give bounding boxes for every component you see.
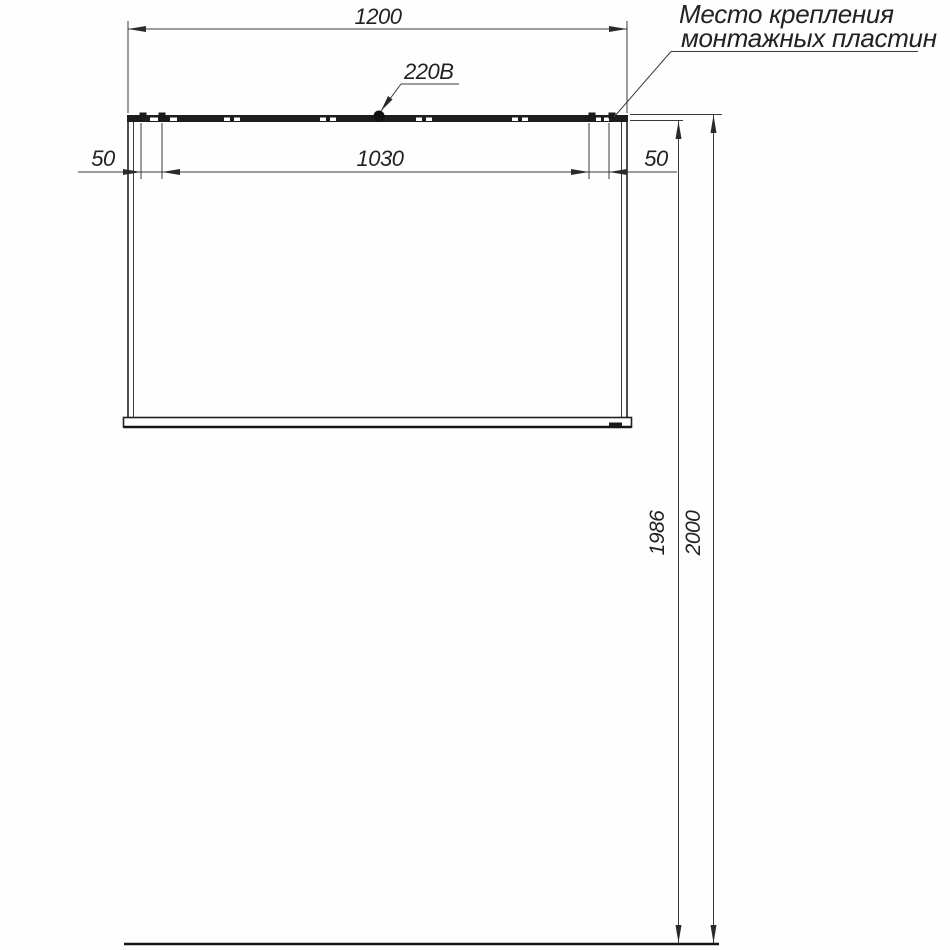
arrowhead-span-left [162, 169, 180, 175]
arrowhead-offset-left-a [123, 169, 141, 175]
drawing-sheet: 1200 50 1030 50 1986 2000 220В [0, 0, 950, 950]
mounting-tab-left-outer [140, 113, 147, 119]
mounting-tab-left-inner [159, 113, 166, 119]
dim-label-offset-left: 50 [91, 146, 116, 171]
arrowhead-span-right [571, 169, 589, 175]
arrowhead-1986-bottom [676, 925, 682, 943]
arrowhead-offset-right-a [609, 169, 627, 175]
dim-label-plate-span: 1030 [357, 146, 405, 171]
dim-label-offset-right: 50 [644, 146, 669, 171]
mounting-annotation: Место крепления монтажных пластин [614, 0, 937, 117]
panel-bottom-rail [124, 418, 632, 428]
dim-label-plate-height: 1986 [646, 510, 669, 556]
mounting-tab-right-inner [589, 113, 596, 119]
arrowhead-1986-top [676, 121, 682, 139]
dim-plate-positions: 50 1030 50 [78, 123, 677, 179]
dim-heights: 1986 2000 [630, 115, 722, 944]
arrowhead-width-left [128, 26, 146, 32]
arrowhead-width-right [609, 26, 627, 32]
bottom-rail-end-cap [609, 423, 622, 428]
arrowhead-2000-top [711, 115, 717, 133]
mounting-tab-right-outer [609, 113, 616, 119]
power-label: 220В [403, 59, 453, 84]
annotation-leader-line [614, 52, 671, 118]
power-leader-arrowhead [381, 96, 393, 111]
annotation-line2: монтажных пластин [681, 23, 937, 53]
dim-label-overall-height: 2000 [682, 510, 705, 557]
arrowhead-2000-bottom [711, 925, 717, 943]
dim-label-overall-width: 1200 [355, 4, 403, 29]
dim-overall-width: 1200 [128, 4, 627, 113]
power-callout: 220В [374, 59, 460, 122]
installation-diagram-svg: 1200 50 1030 50 1986 2000 220В [0, 0, 950, 950]
power-point-dot [374, 111, 385, 122]
